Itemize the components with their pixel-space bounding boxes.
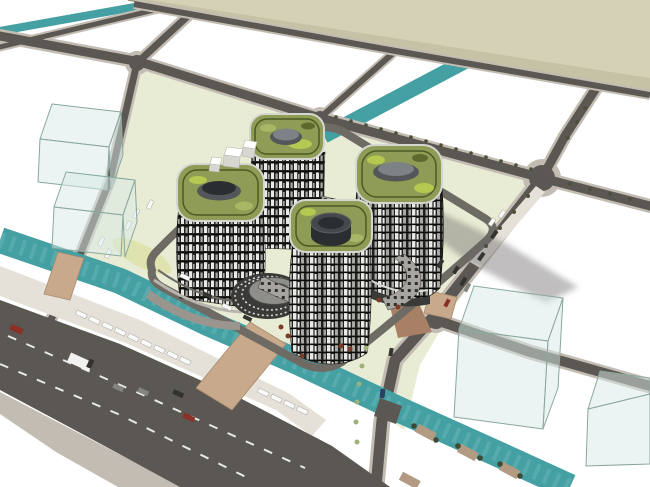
roof-grass-patch: [260, 124, 276, 132]
roof-grass-patch: [412, 154, 428, 162]
planter: [377, 298, 382, 303]
roof-grass-patch: [414, 183, 434, 193]
tree: [628, 197, 632, 201]
roof-grass-patch: [189, 176, 207, 184]
tower-north-drum-top: [273, 129, 299, 141]
shrub: [357, 382, 362, 387]
tree: [526, 194, 530, 198]
shrub: [355, 440, 360, 445]
planter: [279, 325, 284, 330]
tower-south-cylinder-inner: [318, 217, 344, 229]
tower-south-facade: [289, 242, 371, 364]
roof-grass-patch: [300, 208, 316, 216]
tree: [455, 443, 461, 449]
tower-east-drum-top: [378, 162, 414, 176]
white-box-side: [223, 155, 240, 168]
junction: [129, 55, 145, 71]
architectural-render: [0, 0, 650, 487]
roof-grass-patch: [367, 156, 385, 165]
tree: [575, 120, 579, 124]
tree: [334, 115, 338, 119]
glass-box-southeast: [454, 286, 563, 429]
tower-south: [289, 200, 372, 364]
tree: [411, 423, 417, 429]
tree: [514, 163, 518, 167]
tree: [409, 135, 413, 139]
tree: [469, 151, 473, 155]
tree: [568, 182, 572, 186]
tower-west-drum-top: [202, 181, 236, 195]
tree: [433, 437, 439, 443]
planter: [286, 334, 291, 339]
tree: [517, 473, 523, 479]
shrub: [364, 346, 369, 351]
planter: [348, 347, 353, 352]
tree: [529, 167, 533, 171]
tree: [608, 192, 612, 196]
render-viewport: [0, 0, 650, 487]
tree: [588, 187, 592, 191]
junction: [529, 165, 555, 191]
roof-grass-patch: [235, 202, 253, 211]
white-box-side: [209, 164, 220, 172]
tree: [497, 461, 503, 467]
tree: [454, 147, 458, 151]
tree: [583, 106, 587, 110]
tree: [512, 210, 516, 214]
planter: [339, 344, 344, 349]
tree: [439, 143, 443, 147]
tree: [349, 119, 353, 123]
roof-grass-patch: [301, 123, 315, 130]
tree: [477, 455, 483, 461]
glass-box-lower-left: [52, 172, 137, 257]
glass-box-corner: [586, 371, 650, 466]
glass-box-front: [454, 329, 548, 429]
white-box: [210, 157, 222, 165]
shrub: [354, 420, 359, 425]
shrub: [355, 400, 360, 405]
planter: [396, 305, 401, 310]
shrub: [360, 364, 365, 369]
tree: [364, 123, 368, 127]
white-box-side: [242, 147, 255, 158]
planter: [300, 354, 305, 359]
tree: [499, 159, 503, 163]
tree: [424, 139, 428, 143]
tree: [394, 131, 398, 135]
tree: [498, 226, 502, 230]
tree: [484, 244, 488, 248]
glass-box-front: [52, 207, 123, 256]
tree: [566, 136, 570, 140]
tree: [484, 155, 488, 159]
tree: [379, 127, 383, 131]
